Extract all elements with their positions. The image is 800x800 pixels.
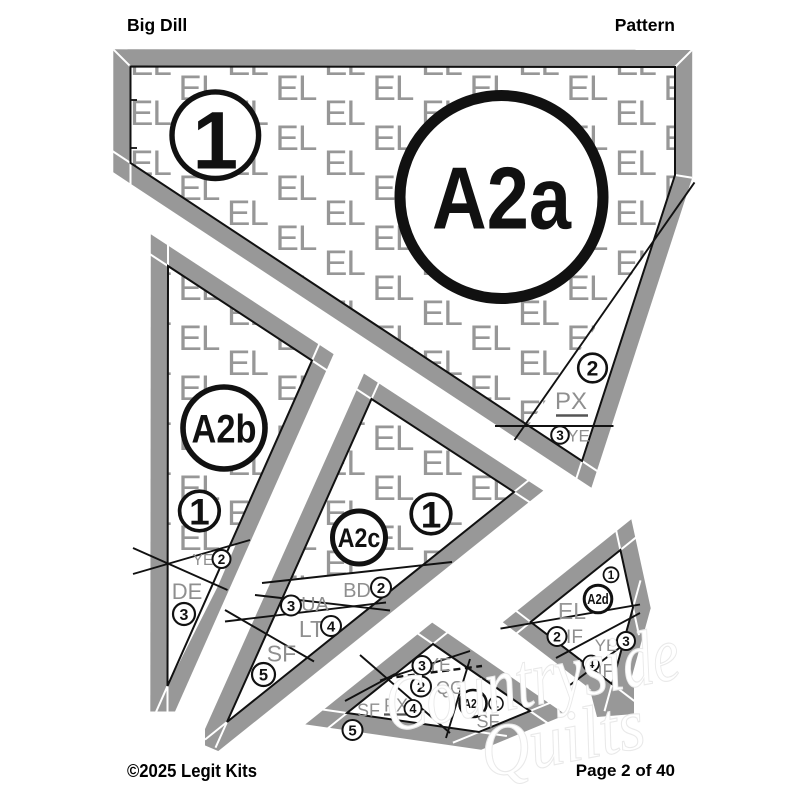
svg-text:YE: YE <box>193 552 214 569</box>
svg-text:5: 5 <box>259 666 268 684</box>
svg-text:2: 2 <box>377 580 385 597</box>
svg-text:A2d: A2d <box>587 592 609 608</box>
svg-text:3: 3 <box>180 607 189 624</box>
svg-text:3: 3 <box>287 598 295 615</box>
svg-text:SF: SF <box>267 641 296 667</box>
svg-text:1: 1 <box>421 494 442 535</box>
svg-text:Big Dill: Big Dill <box>127 15 187 35</box>
svg-text:5: 5 <box>348 722 356 739</box>
svg-text:Page 2 of 40: Page 2 of 40 <box>576 761 675 780</box>
svg-text:A2b: A2b <box>192 407 257 451</box>
svg-text:A2a: A2a <box>432 149 572 248</box>
svg-text:EL: EL <box>558 598 586 624</box>
svg-text:2: 2 <box>587 358 599 381</box>
svg-text:©2025 Legit Kits: ©2025 Legit Kits <box>127 760 257 781</box>
svg-text:1: 1 <box>192 95 238 186</box>
svg-text:3: 3 <box>556 428 564 443</box>
svg-text:1: 1 <box>608 570 615 582</box>
svg-text:SF: SF <box>357 701 380 721</box>
svg-text:4: 4 <box>327 618 336 635</box>
svg-text:PX: PX <box>555 388 587 415</box>
svg-text:1: 1 <box>189 491 210 532</box>
svg-text:Pattern: Pattern <box>615 15 675 35</box>
svg-text:BD: BD <box>343 580 371 602</box>
svg-text:LT: LT <box>299 616 324 642</box>
svg-text:2: 2 <box>218 552 226 567</box>
svg-text:YE: YE <box>567 427 590 446</box>
svg-text:A2c: A2c <box>338 523 381 553</box>
svg-text:DE: DE <box>172 579 203 604</box>
svg-text:UA: UA <box>301 594 329 616</box>
